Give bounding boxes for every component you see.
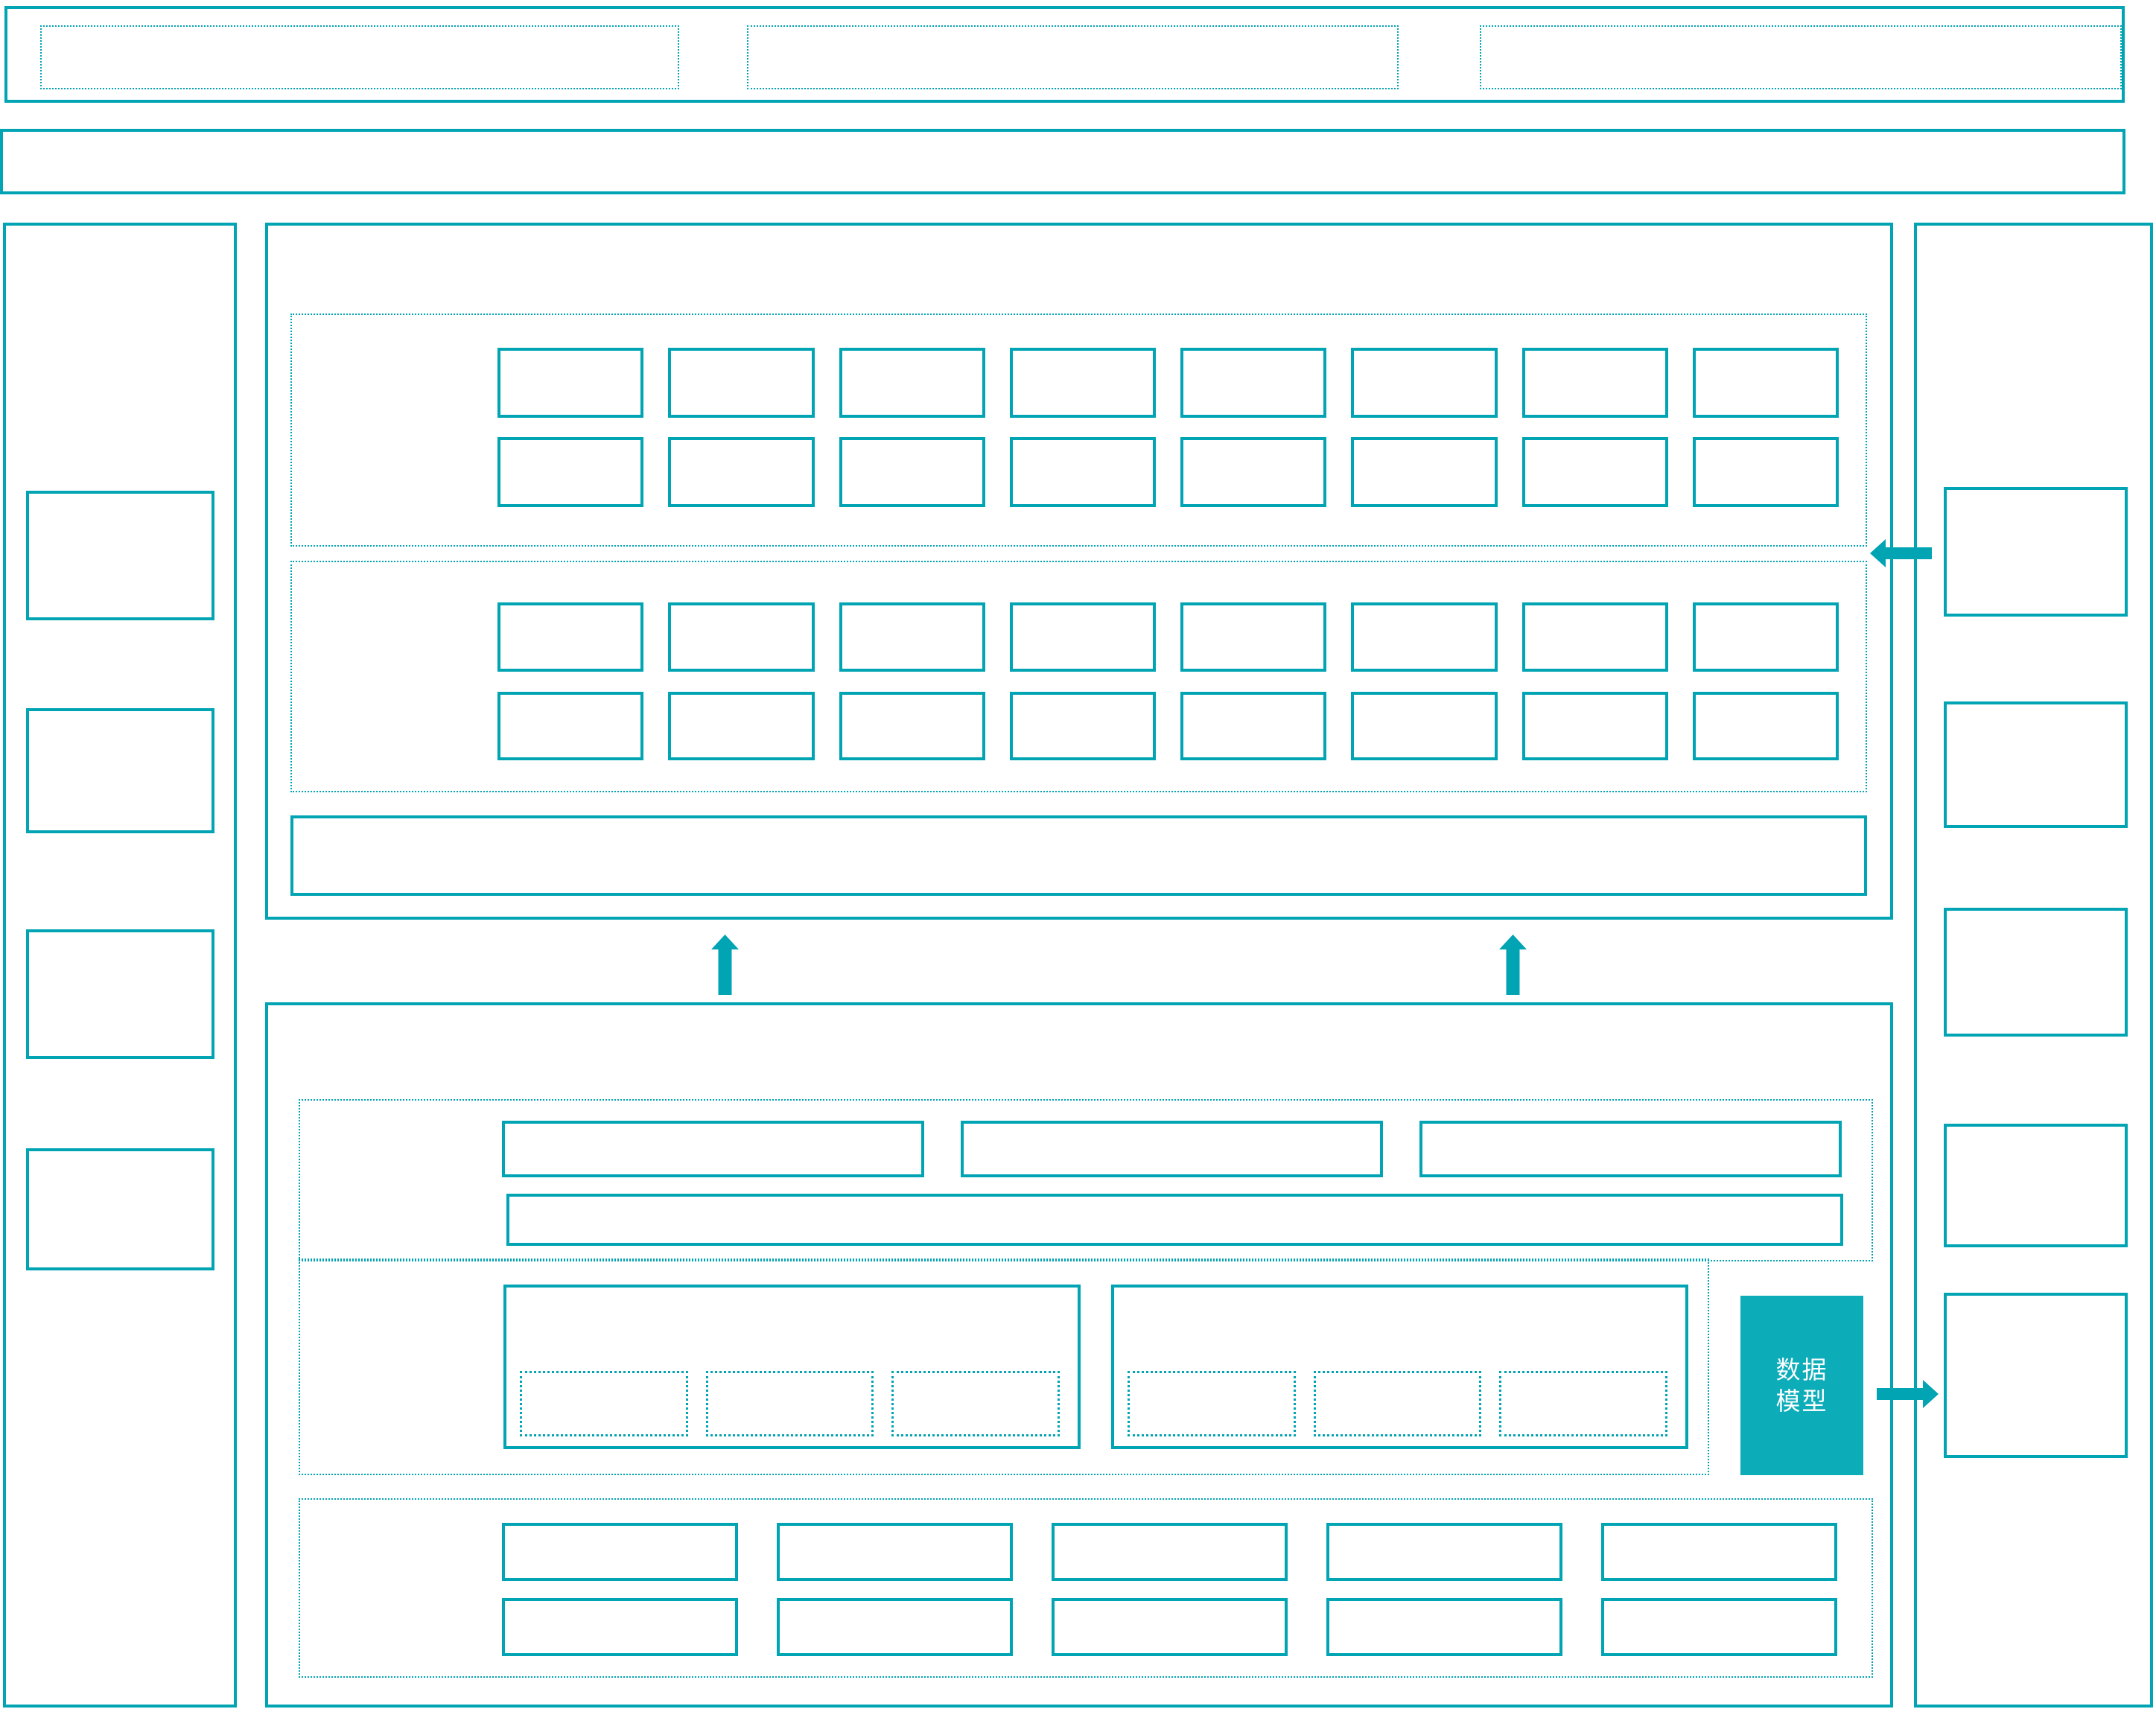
grid-box (1693, 348, 1839, 418)
grid-box (1351, 692, 1497, 760)
module-layer-section (299, 1258, 1709, 1475)
arrow-right-icon (1877, 1380, 1939, 1408)
grid-box (668, 437, 814, 507)
platform-base-bar (290, 815, 1867, 896)
arrow-left-icon (1870, 539, 1932, 567)
grid-box (497, 348, 643, 418)
grid-box (668, 602, 814, 672)
grid-box (706, 1371, 874, 1436)
grid-box (1419, 1121, 1842, 1177)
grid-row (502, 1598, 1837, 1656)
banner-slot (1480, 25, 2122, 89)
grid-box (502, 1523, 738, 1581)
service-layer-section (299, 1099, 1873, 1261)
grid-box (1010, 437, 1156, 507)
grid-row (497, 602, 1839, 672)
grid-box (1052, 1598, 1288, 1656)
grid-box (1351, 348, 1497, 418)
right-panel-box (1944, 1124, 2128, 1247)
grid-box (497, 437, 643, 507)
grid-box (1180, 348, 1326, 418)
arrow-up-icon (711, 935, 739, 995)
lower-platform-box: 数据 模型 (265, 1002, 1893, 1708)
grid-row (497, 692, 1839, 760)
grid-box (1180, 602, 1326, 672)
component-layer-section (299, 1498, 1873, 1678)
left-panel-box (26, 708, 214, 833)
right-panel-box (1944, 701, 2128, 828)
grid-box (891, 1371, 1060, 1436)
grid-box (1693, 437, 1839, 507)
grid-box (839, 437, 985, 507)
grid-box (497, 602, 643, 672)
top-banner (4, 6, 2125, 103)
grid-box (1180, 437, 1326, 507)
right-panel (1914, 223, 2153, 1708)
grid-row (502, 1523, 1837, 1581)
grid-box (668, 692, 814, 760)
left-panel-box (26, 491, 214, 620)
grid-box (839, 692, 985, 760)
upper-platform-box (265, 223, 1893, 920)
grid-box (1326, 1523, 1562, 1581)
left-panel-box (26, 929, 214, 1059)
grid-box (777, 1598, 1013, 1656)
right-panel-box (1944, 487, 2128, 617)
grid-box (1010, 692, 1156, 760)
grid-box (502, 1598, 738, 1656)
data-model-box: 数据 模型 (1740, 1296, 1863, 1475)
grid-box (1522, 348, 1668, 418)
service-base-bar (506, 1194, 1843, 1246)
banner-slot (747, 25, 1399, 89)
grid-box (1010, 602, 1156, 672)
grid-box (1522, 692, 1668, 760)
grid-box (520, 1371, 688, 1436)
module-sub-row (520, 1371, 1060, 1436)
arrow-up-icon (1499, 935, 1527, 995)
grid-box (777, 1523, 1013, 1581)
left-panel-box (26, 1148, 214, 1270)
grid-box (502, 1121, 924, 1177)
right-panel-box (1944, 1293, 2128, 1458)
banner-slot (40, 25, 679, 89)
sub-banner (0, 129, 2125, 194)
grid-box (839, 602, 985, 672)
module-box (1111, 1285, 1688, 1449)
data-model-label: 数据 模型 (1776, 1355, 1828, 1416)
grid-box (1499, 1371, 1667, 1436)
module-sub-row (1128, 1371, 1667, 1436)
grid-box (668, 348, 814, 418)
grid-box (1351, 437, 1497, 507)
grid-box (497, 692, 643, 760)
left-panel (3, 223, 237, 1708)
upper-grid-section-1 (290, 314, 1867, 547)
grid-box (1601, 1523, 1837, 1581)
grid-box (839, 348, 985, 418)
grid-box (1128, 1371, 1296, 1436)
grid-row (497, 348, 1839, 418)
right-panel-box (1944, 908, 2128, 1037)
grid-box (1052, 1523, 1288, 1581)
grid-box (1522, 437, 1668, 507)
grid-box (1601, 1598, 1837, 1656)
grid-box (1351, 602, 1497, 672)
grid-box (1314, 1371, 1482, 1436)
grid-box (1522, 602, 1668, 672)
grid-box (1180, 692, 1326, 760)
grid-row (502, 1121, 1842, 1177)
architecture-diagram: 数据 模型 (0, 0, 2156, 1709)
grid-box (1693, 692, 1839, 760)
grid-row (497, 437, 1839, 507)
module-box (503, 1285, 1081, 1449)
grid-box (1693, 602, 1839, 672)
grid-box (1326, 1598, 1562, 1656)
grid-box (1010, 348, 1156, 418)
upper-grid-section-2 (290, 561, 1867, 792)
grid-box (961, 1121, 1383, 1177)
